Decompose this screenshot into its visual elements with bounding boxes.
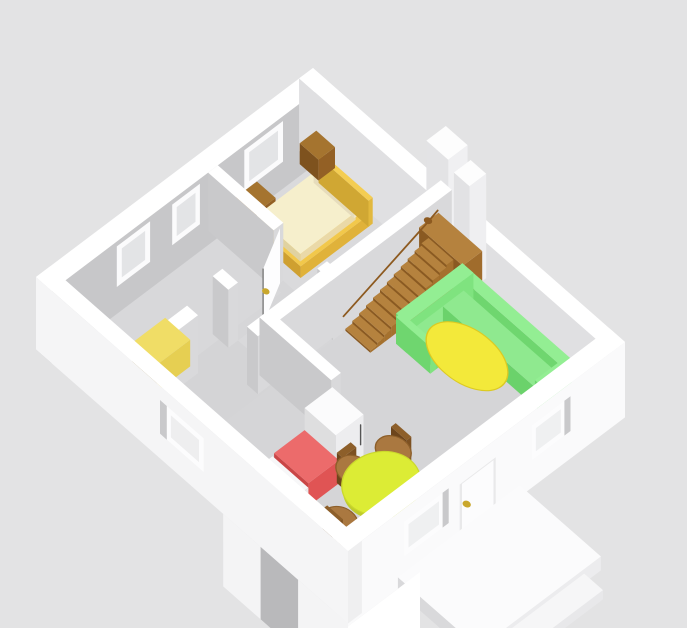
wall-hall-south-left-face-se (228, 283, 238, 348)
floor-plan-viewport (0, 0, 687, 628)
window-se-living-reveal (564, 396, 570, 435)
window-sw-reveal (160, 400, 167, 440)
bed-headboard-face-se (369, 198, 373, 227)
exterior-wall-sw-face-se (348, 541, 362, 624)
floor-plan-3d-view (0, 0, 687, 628)
window-se-dining-reveal (443, 488, 449, 527)
wall-bedroom-stairs-face-sw (247, 327, 258, 395)
